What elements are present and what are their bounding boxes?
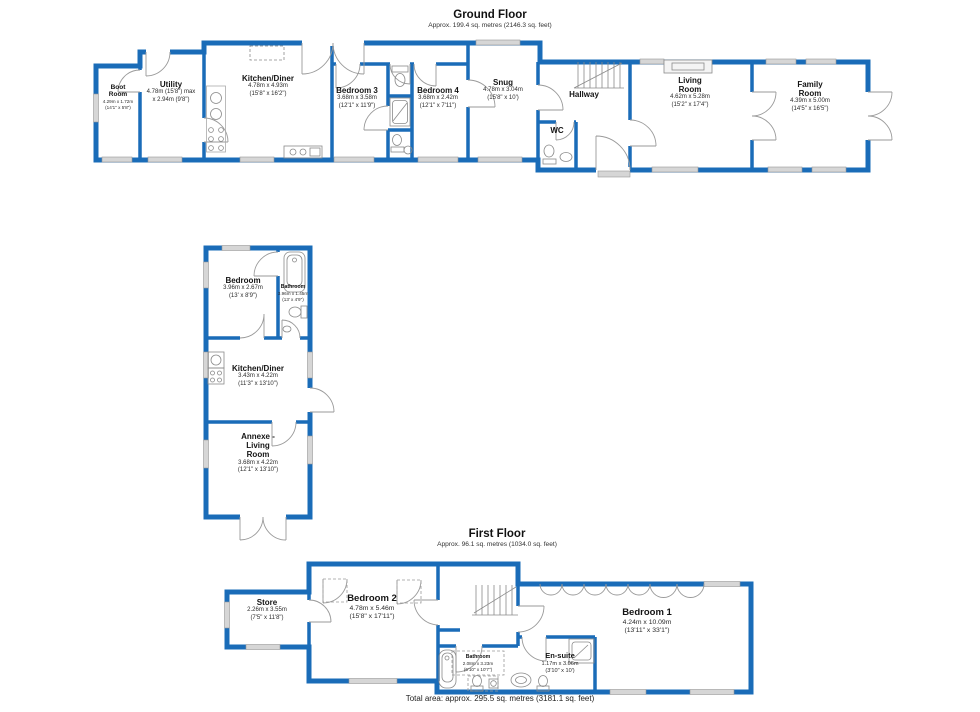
first-floor-plan	[225, 564, 752, 695]
ground-floor-walls	[96, 40, 871, 173]
floorplan-page: Ground Floor Approx. 199.4 sq. metres (2…	[0, 0, 980, 712]
ground-floor-plan	[94, 40, 893, 177]
first-floor-walls	[227, 564, 751, 692]
floorplan-drawing	[0, 0, 980, 712]
annexe-plan	[204, 246, 335, 541]
